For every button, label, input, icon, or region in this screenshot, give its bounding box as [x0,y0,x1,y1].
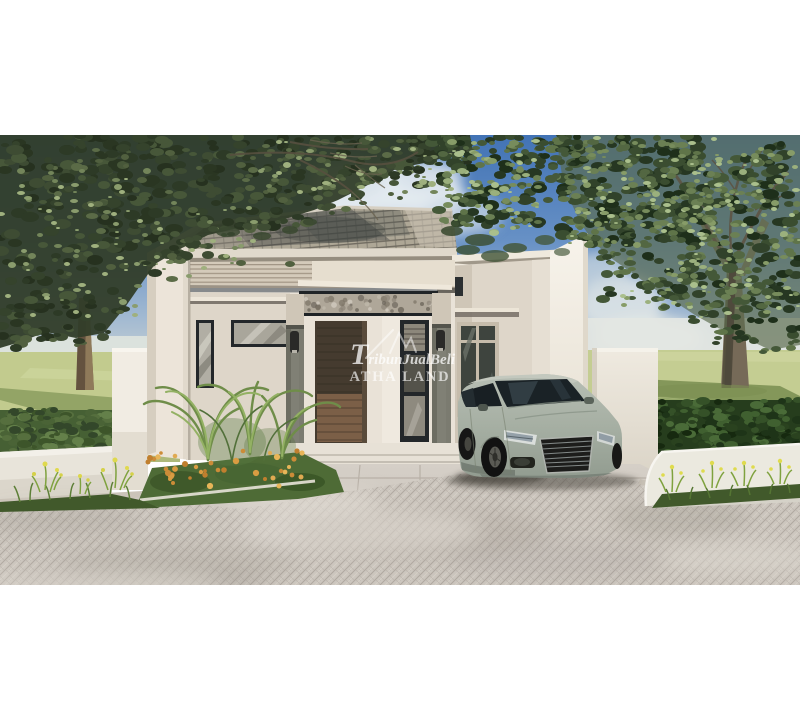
svg-text:ATHA LAND: ATHA LAND [350,369,451,385]
